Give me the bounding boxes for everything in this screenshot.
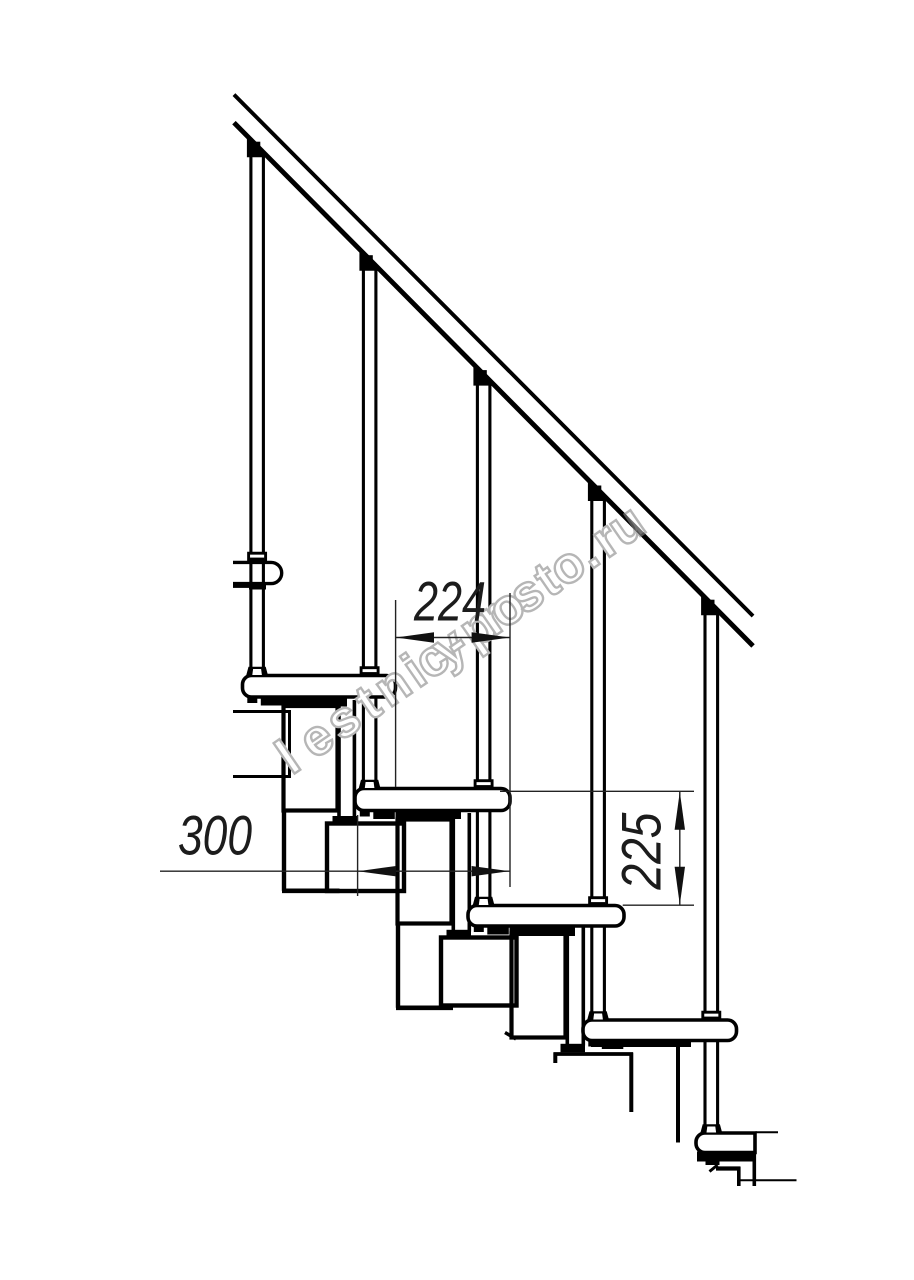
svg-text:224: 224: [413, 570, 486, 633]
svg-text:300: 300: [178, 803, 252, 866]
svg-text:225: 225: [610, 812, 673, 891]
